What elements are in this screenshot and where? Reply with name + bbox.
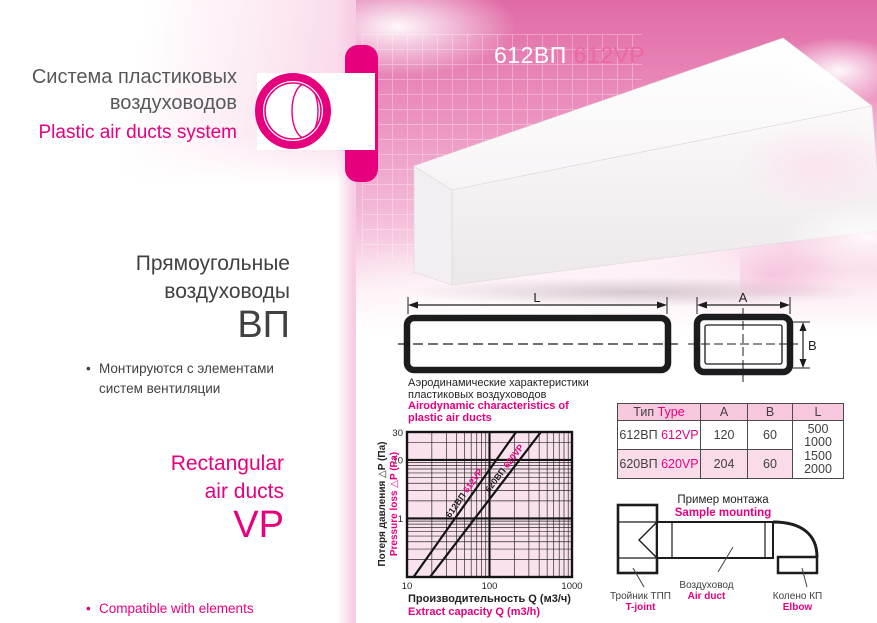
cell-a-612: 120 — [701, 421, 748, 450]
product-code-ru: 612ВП — [494, 42, 567, 68]
col-header-type-en: Type — [658, 405, 685, 419]
cell-type-612-en: 612VP — [661, 428, 699, 442]
chart-title-ru-line1: Аэродинамические характеристики — [408, 378, 628, 390]
system-title-ru-line1: Система пластиковых — [30, 64, 237, 90]
col-header-b: B — [748, 404, 793, 421]
heading-en-line2: air ducts — [58, 478, 284, 506]
series-code-ru: ВП — [60, 304, 290, 347]
label-elbow-ru: Колено КП — [755, 591, 840, 602]
feature-bullet-en: • Compatible with elements of ventilatio… — [86, 599, 314, 623]
l-value: 1000 — [793, 436, 843, 450]
product-code-label: 612ВП 612VP — [494, 42, 645, 69]
dim-label-a: A — [739, 290, 748, 305]
cell-b-620: 60 — [748, 450, 793, 479]
heading-ru-line2: воздуховоды — [60, 278, 290, 306]
cell-type-612: 612ВП 612VP — [618, 421, 701, 450]
bullet-icon: • — [86, 599, 91, 619]
table-row: 612ВП 612VP 120 60 500 1000 1500 2000 — [618, 421, 844, 450]
series-code-en: VP — [58, 504, 284, 547]
dim-label-l: L — [533, 290, 540, 305]
label-air-duct: Воздуховод Air duct — [664, 580, 749, 602]
mounting-diagram — [608, 500, 868, 590]
cloud-overlay — [740, 28, 877, 296]
col-header-a: A — [701, 404, 748, 421]
feature-bullet-ru: • Монтируются с элементами систем вентил… — [86, 359, 309, 399]
brand-duct-logo — [250, 40, 385, 185]
catalog-page: 612ВП 612VP Система пластиковых воздухов… — [0, 0, 877, 623]
heading-en: Rectangular air ducts — [58, 450, 284, 506]
chart-title-en-line1: Airodynamic characteristics of — [408, 401, 628, 413]
air-duct-shape — [657, 522, 773, 558]
chart-x-axis-title: Производительность Q (м3/ч) Extract capa… — [408, 593, 571, 619]
feature-en-line2: of ventilation system — [99, 619, 314, 623]
y-axis-title-ru: Потеря давления △P (Па) — [377, 429, 389, 579]
label-t-joint-en: T-joint — [598, 602, 683, 613]
product-code-en: 612VP — [574, 42, 646, 68]
cell-type-620-ru: 620ВП — [619, 457, 657, 471]
heading-ru-line1: Прямоугольные — [60, 250, 290, 278]
dim-label-b: B — [808, 338, 817, 353]
system-title-ru: Система пластиковых воздуховодов — [30, 64, 237, 116]
x-tick-1000: 1000 — [561, 581, 582, 592]
cell-b-612: 60 — [748, 421, 793, 450]
system-title-ru-line2: воздуховодов — [30, 90, 237, 116]
chart-title-en-line2: plastic air ducts — [408, 413, 628, 425]
dimension-drawing: L A B — [395, 288, 825, 383]
spec-table: Тип Type A B L 612ВП 612VP 120 60 500 10… — [617, 403, 844, 479]
bullet-icon: • — [86, 359, 91, 379]
x-axis-title-ru: Производительность Q (м3/ч) — [408, 593, 571, 606]
cell-a-620: 204 — [701, 450, 748, 479]
l-value: 2000 — [793, 463, 843, 477]
y-axis-title-en: Pressure loss △P (Pa) — [389, 429, 401, 579]
l-value: 500 — [793, 423, 843, 437]
feature-ru-line1: Монтируются с элементами — [99, 359, 309, 379]
cell-type-612-ru: 612ВП — [619, 428, 657, 442]
cell-type-620-en: 620VP — [661, 457, 699, 471]
feature-ru-line2: систем вентиляции — [99, 379, 309, 399]
heading-ru: Прямоугольные воздуховоды — [60, 250, 290, 306]
x-axis-title-en: Extract capacity Q (m3/h) — [408, 606, 571, 619]
feature-en-line1: Compatible with elements — [99, 599, 314, 619]
label-elbow-en: Elbow — [755, 602, 840, 613]
system-title-en: Plastic air ducts system — [30, 122, 237, 144]
label-air-duct-en: Air duct — [664, 591, 749, 602]
t-joint-shape — [618, 505, 657, 573]
elbow-curve — [773, 522, 817, 557]
label-air-duct-ru: Воздуховод — [664, 580, 749, 591]
heading-en-line1: Rectangular — [58, 450, 284, 478]
elbow-socket-shape — [778, 557, 817, 573]
col-header-type-ru: Тип — [633, 405, 654, 419]
x-tick-10: 10 — [402, 581, 413, 592]
chart-y-axis-title: Потеря давления △P (Па) Pressure loss △P… — [377, 429, 401, 579]
col-header-type: Тип Type — [618, 404, 701, 421]
l-value: 1500 — [793, 450, 843, 464]
cell-type-620: 620ВП 620VP — [618, 450, 701, 479]
label-elbow: Колено КП Elbow — [755, 591, 840, 613]
x-tick-100: 100 — [482, 581, 498, 592]
col-header-l: L — [793, 404, 844, 421]
aerodynamic-chart: 612ВП 612VP620ВП 620VP30101101001000 — [380, 425, 600, 600]
table-header-row: Тип Type A B L — [618, 404, 844, 421]
cell-l-values: 500 1000 1500 2000 — [793, 421, 844, 479]
chart-title: Аэродинамические характеристики пластико… — [408, 378, 628, 424]
